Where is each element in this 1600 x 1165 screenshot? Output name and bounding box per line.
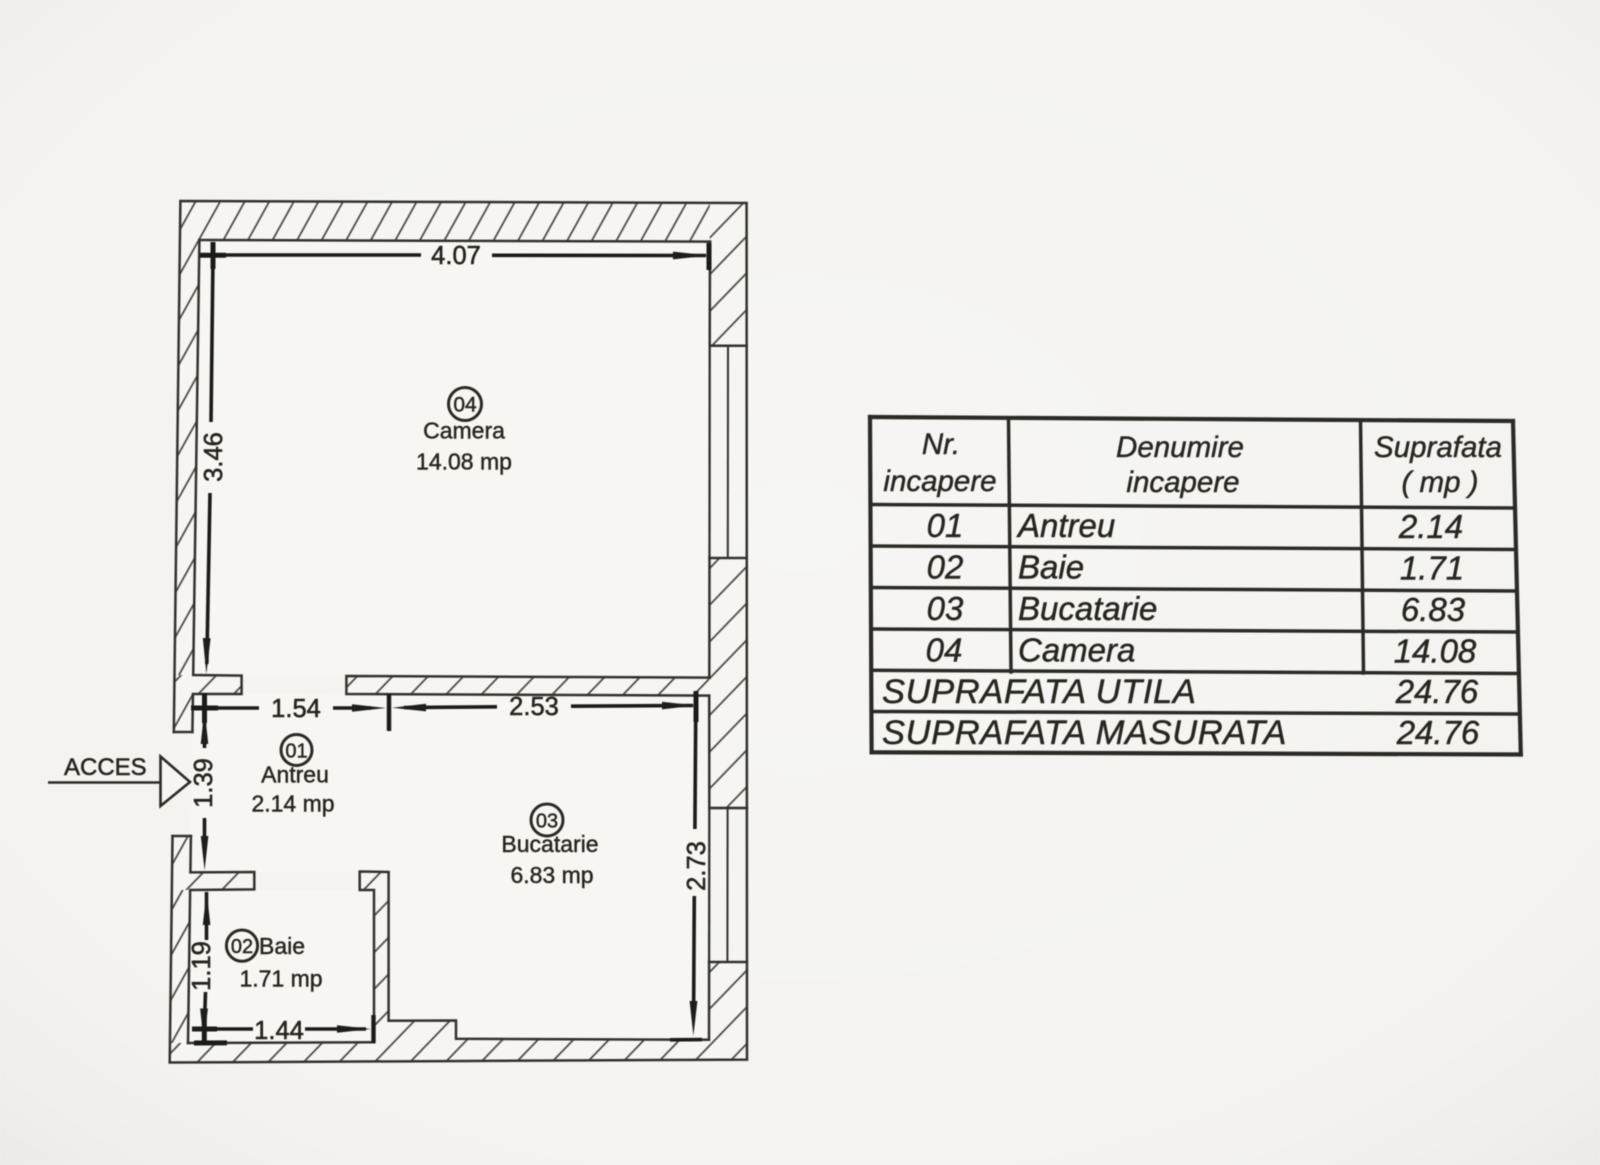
svg-text:Antreu: Antreu bbox=[261, 762, 329, 788]
svg-text:Bucatarie: Bucatarie bbox=[1018, 590, 1157, 627]
svg-text:02: 02 bbox=[231, 936, 253, 958]
svg-text:Antreu: Antreu bbox=[1016, 507, 1115, 544]
svg-text:2.53: 2.53 bbox=[509, 693, 559, 721]
svg-text:14.08 mp: 14.08 mp bbox=[416, 449, 512, 475]
svg-text:24.76: 24.76 bbox=[1395, 673, 1479, 710]
svg-text:Nr.: Nr. bbox=[922, 428, 960, 461]
svg-text:Denumire: Denumire bbox=[1116, 431, 1244, 464]
svg-text:1.71 mp: 1.71 mp bbox=[239, 966, 322, 992]
svg-text:2.14: 2.14 bbox=[1398, 508, 1463, 545]
svg-text:1.44: 1.44 bbox=[254, 1017, 304, 1045]
svg-text:24.76: 24.76 bbox=[1396, 714, 1480, 751]
svg-text:04: 04 bbox=[453, 394, 477, 417]
svg-text:2.73: 2.73 bbox=[683, 841, 711, 891]
svg-text:03: 03 bbox=[536, 811, 558, 833]
svg-text:Camera: Camera bbox=[1018, 632, 1135, 669]
svg-text:04: 04 bbox=[926, 632, 963, 669]
svg-text:01: 01 bbox=[927, 507, 964, 544]
svg-text:1.71: 1.71 bbox=[1400, 550, 1464, 587]
svg-text:14.08: 14.08 bbox=[1394, 633, 1477, 670]
svg-text:1.39: 1.39 bbox=[190, 758, 218, 808]
svg-text:Bucatarie: Bucatarie bbox=[501, 831, 598, 857]
svg-text:incapere: incapere bbox=[883, 465, 996, 498]
svg-text:ACCES: ACCES bbox=[64, 754, 147, 781]
svg-text:6.83 mp: 6.83 mp bbox=[510, 862, 593, 888]
svg-text:SUPRAFATA UTILA: SUPRAFATA UTILA bbox=[882, 673, 1196, 711]
svg-text:01: 01 bbox=[285, 741, 307, 763]
svg-text:Baie: Baie bbox=[259, 933, 305, 959]
svg-text:03: 03 bbox=[927, 590, 964, 627]
svg-text:1.54: 1.54 bbox=[271, 695, 321, 723]
svg-text:incapere: incapere bbox=[1126, 466, 1239, 499]
svg-text:2.14 mp: 2.14 mp bbox=[251, 791, 334, 817]
svg-text:Camera: Camera bbox=[423, 418, 505, 444]
svg-text:1.19: 1.19 bbox=[188, 941, 216, 991]
svg-text:4.07: 4.07 bbox=[431, 242, 481, 270]
svg-text:Baie: Baie bbox=[1018, 549, 1084, 586]
svg-text:02: 02 bbox=[927, 549, 964, 586]
svg-text:( mp ): ( mp ) bbox=[1401, 466, 1478, 499]
svg-text:6.83: 6.83 bbox=[1401, 591, 1466, 628]
svg-text:SUPRAFATA MASURATA: SUPRAFATA MASURATA bbox=[882, 714, 1287, 752]
svg-text:3.46: 3.46 bbox=[200, 432, 228, 482]
svg-text:Suprafata: Suprafata bbox=[1374, 431, 1502, 464]
